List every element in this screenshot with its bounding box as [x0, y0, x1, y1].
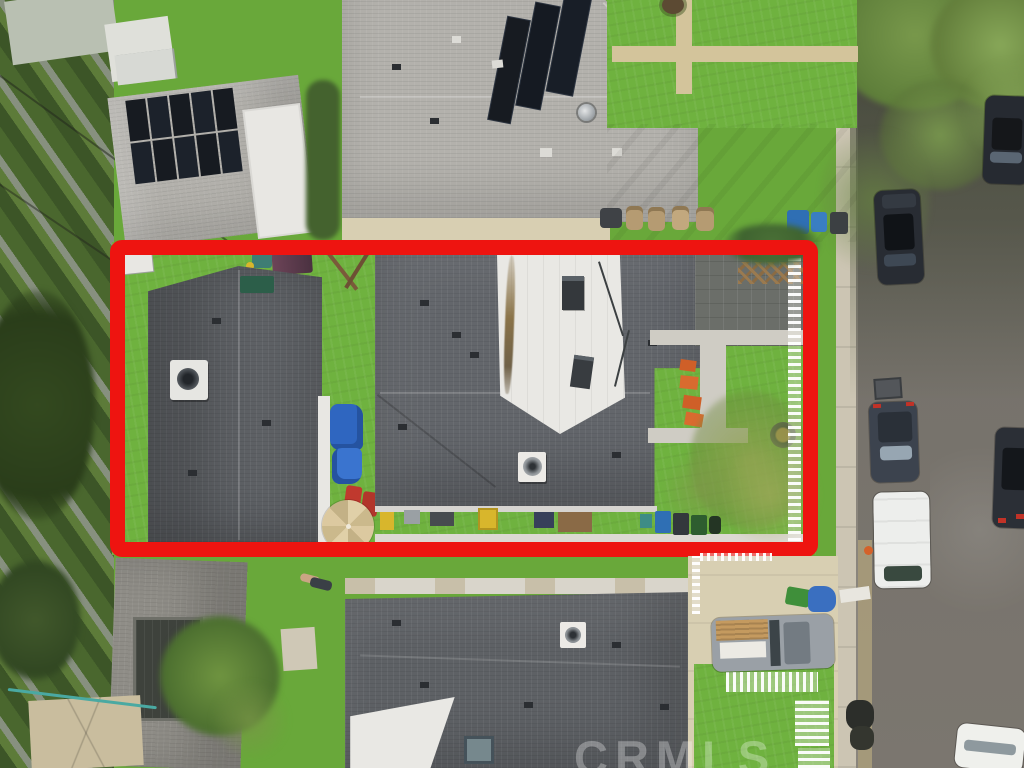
solar-panel: [169, 93, 194, 136]
solar-panel: [174, 136, 199, 179]
car-taillight: [906, 402, 914, 406]
picket-fence: [700, 553, 772, 561]
garden-path-vertical: [676, 0, 692, 94]
car-windshield: [880, 445, 912, 460]
car-roof-glass: [877, 411, 912, 442]
picket-fence-section: [798, 748, 830, 768]
attic-fan: [565, 627, 581, 643]
garden-path-horizontal: [612, 46, 858, 62]
blue-tarp-pile: [808, 586, 836, 612]
car-taillight: [873, 404, 881, 408]
picket-fence-section: [795, 700, 829, 746]
solar-panel: [196, 133, 221, 176]
solar-panel: [131, 141, 156, 184]
solar-panel: [152, 138, 177, 181]
truck-cab-glass: [783, 622, 810, 665]
car-roof-glass: [1001, 448, 1024, 491]
truck-windshield: [769, 620, 781, 666]
paver-pad: [281, 627, 318, 671]
wicker-chair: [672, 206, 689, 230]
skylight: [464, 736, 494, 764]
roof-vent: [392, 64, 401, 70]
traffic-cone: [864, 546, 873, 555]
hedge-between-houses: [306, 80, 340, 240]
dumpster: [875, 379, 900, 398]
roof-vent: [612, 642, 621, 648]
turbine-vent: [578, 104, 595, 121]
car-roof-glass: [991, 117, 1022, 150]
recycle-bin-blue: [811, 212, 827, 232]
lumber-sheet-white: [720, 641, 767, 659]
car-taillight: [998, 518, 1006, 523]
yard-tree-bottom-left: [210, 680, 290, 760]
roof-vent: [430, 118, 439, 124]
roof-vent: [392, 620, 401, 626]
car-roof-glass: [883, 213, 915, 251]
van-windshield: [884, 566, 922, 582]
roof-vent: [660, 704, 669, 710]
solar-panel: [125, 98, 150, 141]
solar-array: [125, 88, 242, 185]
roof-vent-box: [492, 59, 504, 68]
wicker-chair: [626, 206, 643, 230]
roof-vent: [524, 702, 533, 708]
mls-watermark: CRMLS: [574, 730, 776, 768]
car-hood: [882, 193, 917, 209]
lumber-stack: [716, 619, 769, 641]
car-taillight: [1016, 514, 1024, 519]
front-lawn-top: [607, 0, 857, 128]
solar-panel: [191, 90, 216, 133]
car-windshield: [884, 253, 917, 267]
roof-vent-box: [452, 36, 461, 43]
roof-vent-box: [540, 148, 552, 157]
car-windshield: [990, 151, 1022, 163]
trash-bags: [850, 726, 874, 750]
tan-shed-roof: [28, 695, 144, 768]
bbq-grill: [600, 208, 622, 228]
roof-vent: [420, 682, 429, 688]
trash-bin-dark: [830, 212, 848, 234]
picket-fence: [692, 556, 700, 614]
wicker-chair: [696, 207, 714, 231]
bottom-house-wall: [345, 578, 690, 594]
driveway-strip: [342, 218, 610, 242]
wicker-chair: [648, 207, 665, 231]
aerial-photo: CRMLS: [0, 0, 1024, 768]
person-on-lawn: [309, 576, 333, 591]
solar-panel: [147, 96, 172, 139]
picket-fence-section: [726, 672, 818, 692]
property-outline: [110, 240, 818, 557]
ac-pads: [114, 49, 175, 86]
